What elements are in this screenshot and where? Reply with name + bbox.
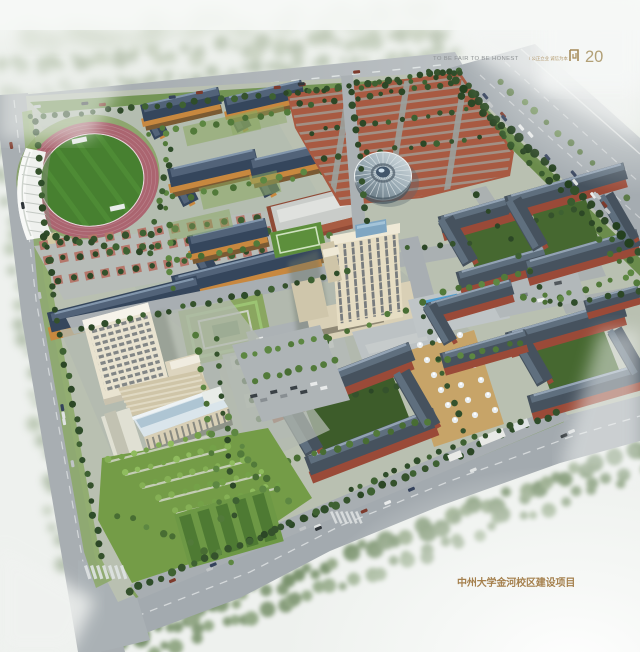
svg-text:20: 20 [585,48,603,66]
svg-text:/ 公正立业 诚信为本: / 公正立业 诚信为本 [529,55,568,62]
svg-text:中州大学金河校区建设项目: 中州大学金河校区建设项目 [457,576,575,589]
svg-text:TO BE FAIR TO BE HONEST: TO BE FAIR TO BE HONEST [433,56,519,62]
